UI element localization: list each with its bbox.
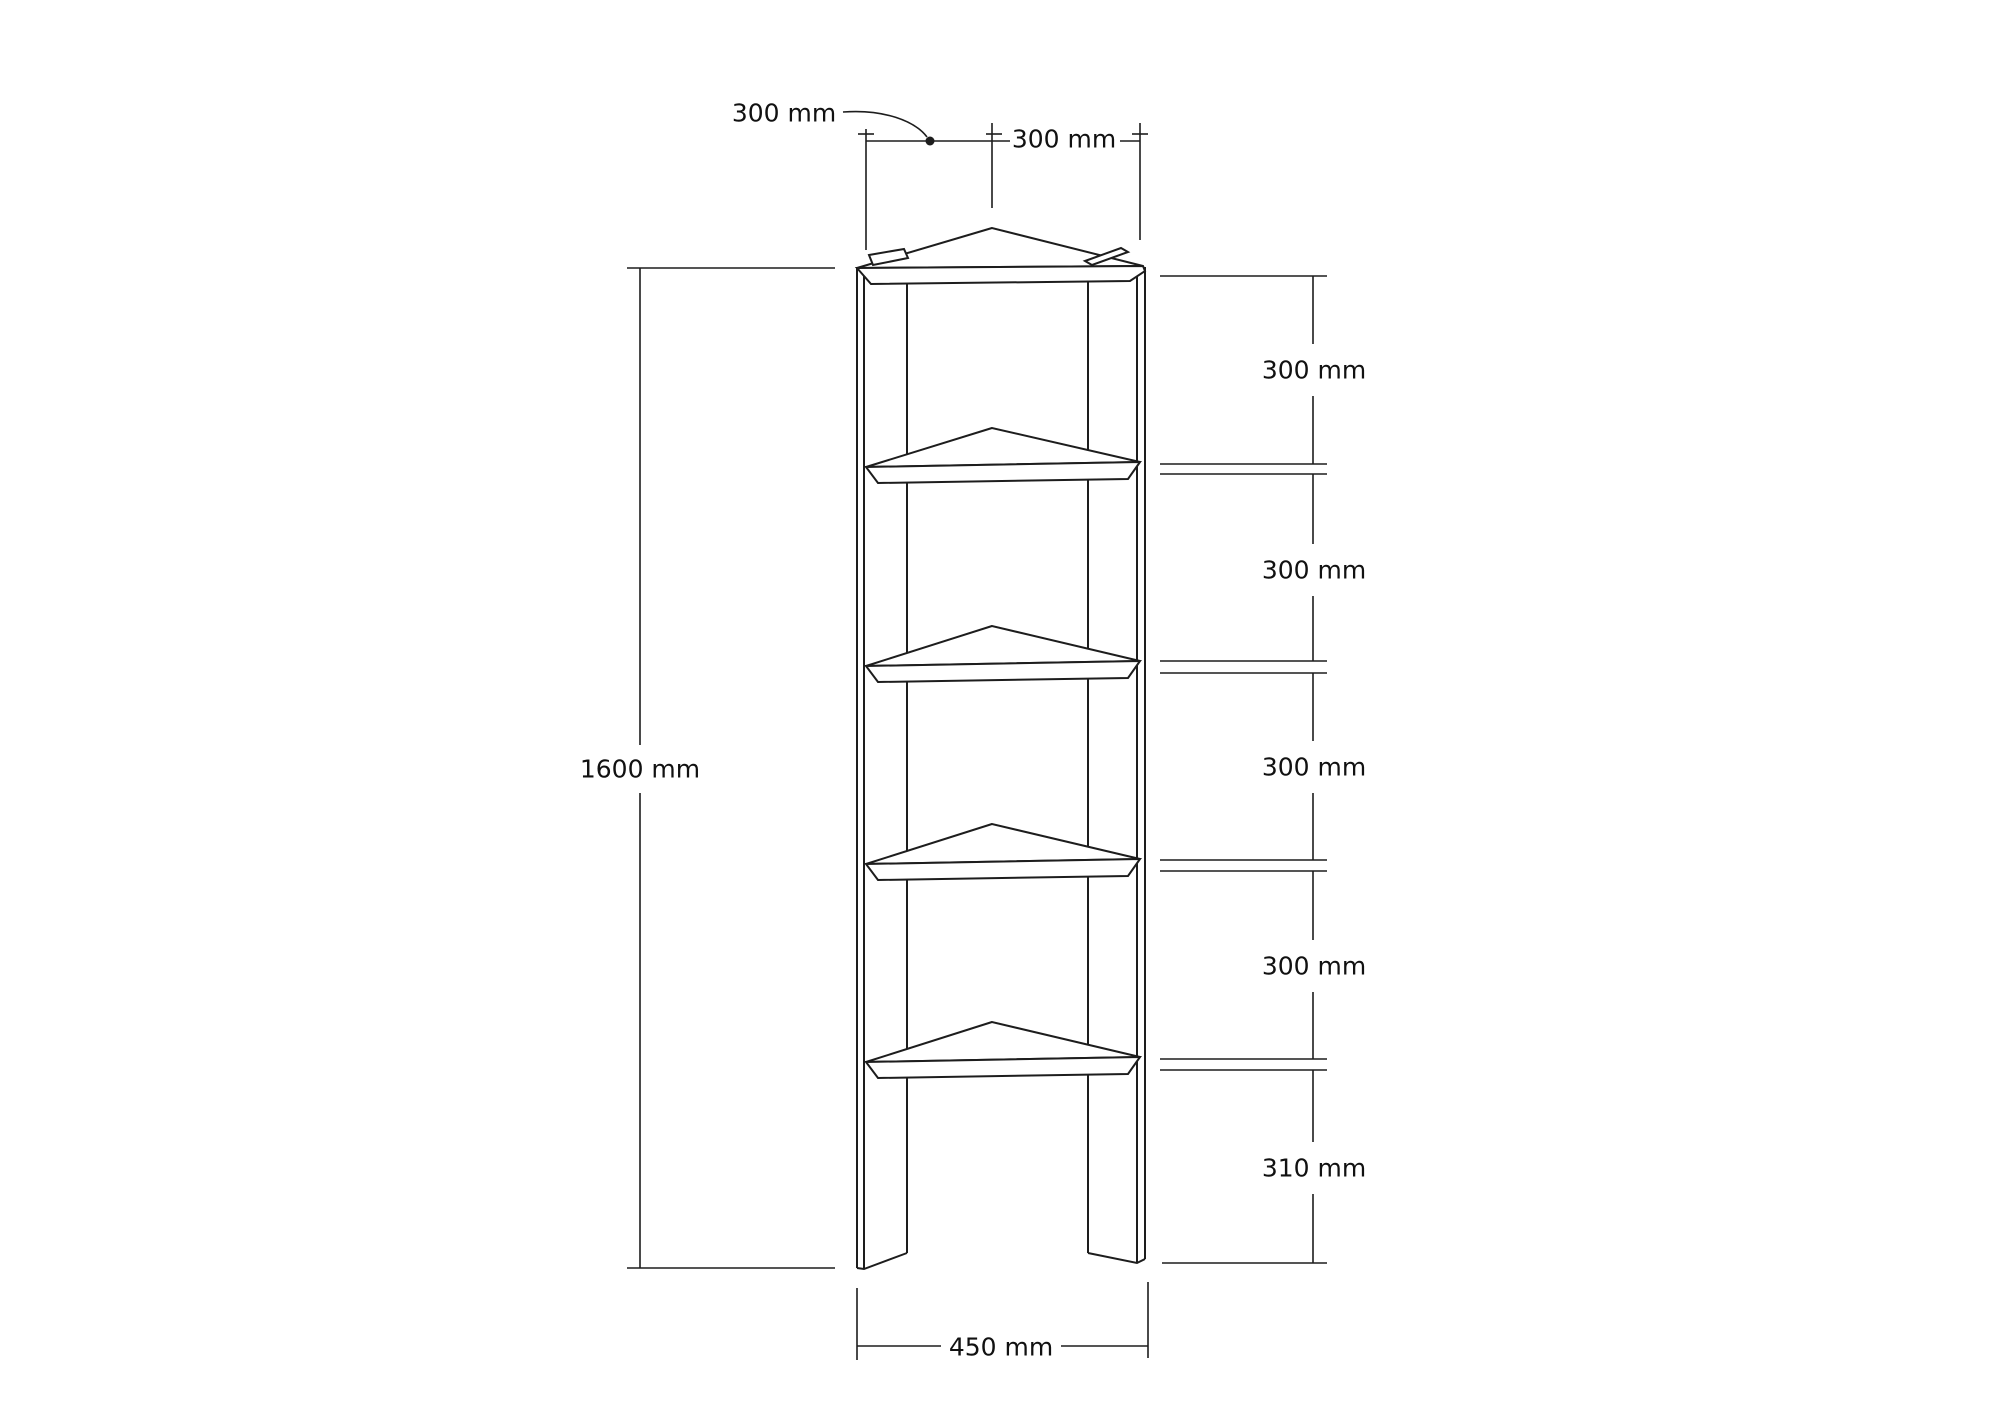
base-width-dimension: 450 mm [857,1282,1148,1362]
top-dimensions: 300 mm 300 mm [732,99,1148,251]
height-dimension: 1600 mm [580,268,835,1268]
shelf-gap-label-3: 300 mm [1262,753,1366,782]
corner-shelf-dimension-drawing: 1600 mm 300 mm 300 mm [0,0,2000,1414]
shelf-top-front-edge [857,266,1145,284]
top-depth-leader-line [843,112,927,137]
panel-vertical-edges [857,267,1145,1269]
shelf-gap-dimensions: 300 mm 300 mm 300 mm 300 mm 310 mm [1160,276,1366,1263]
shelf-gap-label-1: 300 mm [1262,356,1366,385]
dim-height-label: 1600 mm [580,755,700,784]
leg-bottom-edges [857,1253,1145,1269]
top-depth-leader-dot [926,137,935,146]
shelf-gap-label-4: 300 mm [1262,952,1366,981]
shelf-top [857,228,1145,284]
dim-base-width-label: 450 mm [949,1333,1053,1362]
shelf-gap-label-2: 300 mm [1262,556,1366,585]
dimension-drawing-page: 1600 mm 300 mm 300 mm [0,0,2000,1414]
shelf-gap-label-5: 310 mm [1262,1154,1366,1183]
dim-top-depth-label: 300 mm [732,99,836,128]
corner-shelf-unit [857,228,1145,1269]
dim-top-width-label: 300 mm [1012,125,1116,154]
